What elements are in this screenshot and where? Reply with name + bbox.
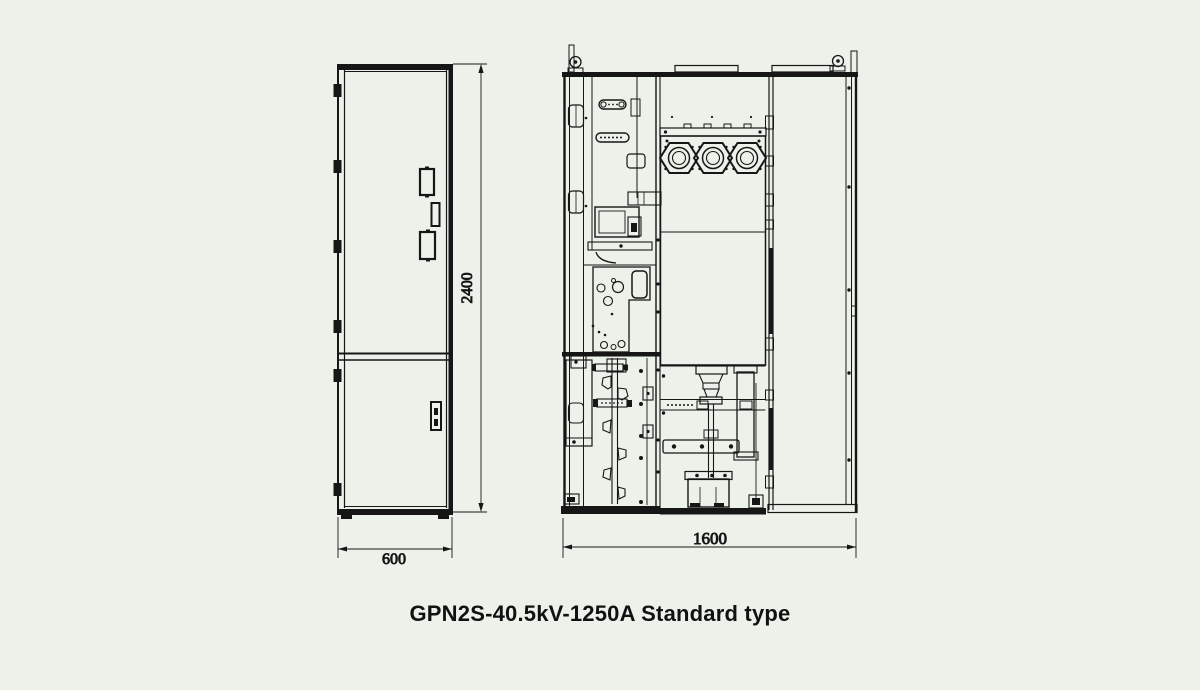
bushing-2 [694, 143, 732, 173]
hinge [334, 84, 342, 97]
dim-width-label: 600 [382, 551, 406, 568]
upper-door [339, 72, 451, 354]
mechanism-panel [583, 265, 656, 352]
door-handle [431, 402, 441, 430]
top-cap [337, 64, 453, 70]
circuit-breaker-enclosure [660, 136, 766, 365]
hinge [334, 240, 342, 253]
hinge [334, 160, 342, 173]
operating-motor [588, 192, 661, 263]
hinge [334, 369, 342, 382]
top-rail [562, 72, 858, 77]
drawing-canvas: 2400 600 [0, 0, 1200, 690]
bushing-1 [660, 143, 698, 173]
side-tank [734, 366, 758, 460]
switchgear-technical-drawing: 2400 600 [0, 0, 1200, 690]
inspection-windows [420, 167, 440, 262]
front-view: 2400 600 [334, 64, 488, 568]
support-insulator [696, 366, 727, 478]
lifting-lugs [568, 45, 857, 75]
dim-height-label: 2400 [459, 272, 476, 303]
drawing-title: GPN2S-40.5kV-1250A Standard type [0, 601, 1200, 627]
busbar-compartment-top [660, 116, 766, 136]
dimension-height: 2400 [453, 64, 487, 512]
hinge [334, 483, 342, 496]
hinge [334, 320, 342, 333]
dim-depth-label: 1600 [693, 529, 727, 548]
lower-door [339, 360, 451, 507]
front-cabinet-outline [337, 64, 453, 519]
base-bar [337, 509, 453, 515]
dimension-width: 600 [338, 517, 452, 568]
linkage-compartment [561, 356, 660, 514]
bushing-3 [728, 143, 766, 173]
dimension-depth: 1600 [563, 518, 856, 558]
side-view: 1600 [561, 45, 858, 558]
mechanism-compartment [562, 77, 661, 357]
cable-compartment [660, 366, 766, 515]
